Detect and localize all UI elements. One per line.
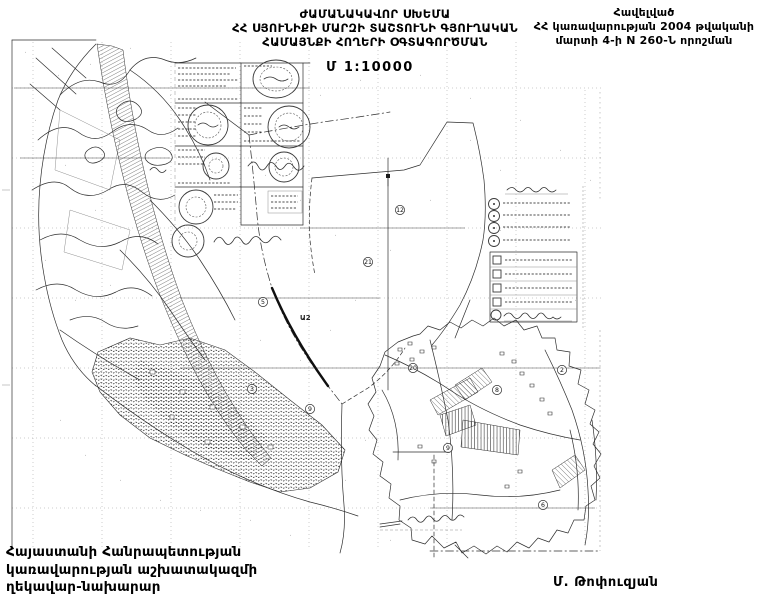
svg-text:9: 9 [446, 445, 450, 452]
legend-circle-icon [491, 310, 501, 320]
parcel-marker: 2 [557, 365, 566, 374]
title-line-2: ՀՀ ՍՅՈՒՆԻՔԻ ՄԱՐԶԻ ՏԱՇՏՈՒՆԻ ԳՅՈՒՂԱԿԱՆ [200, 21, 550, 35]
handwriting [504, 313, 561, 319]
legend-circle-icon [489, 199, 500, 247]
parcel-marker: 6 [538, 500, 547, 509]
map-legend [489, 186, 584, 330]
svg-text:8: 8 [495, 387, 499, 394]
appendix-line-3: մարտի 4-ի N 260-Ն որոշման [522, 34, 766, 48]
parcel-marker: 20 [408, 363, 417, 372]
svg-text:9: 9 [308, 406, 312, 413]
round-seal-icon [203, 153, 229, 179]
signatory-title: Հայաստանի Հանրապետության կառավարության ա… [6, 544, 257, 597]
handwriting [214, 236, 281, 244]
svg-text:2: 2 [560, 367, 564, 374]
svg-text:3: 3 [250, 386, 254, 393]
approval-stamps-table [150, 60, 310, 257]
parcel-marker: 8 [492, 385, 501, 394]
round-seal-icon [268, 106, 310, 148]
round-seal-icon [179, 190, 213, 224]
map-canvas: 5 21 12 3 9 20 9 8 2 [0, 0, 768, 606]
svg-text:20: 20 [409, 365, 417, 372]
settlement-south [368, 300, 601, 558]
handwriting [150, 168, 166, 173]
map-title: ԺԱՄԱՆԱԿԱՎՈՐ ՍԽԵՄԱ ՀՀ ՍՅՈՒՆԻՔԻ ՄԱՐԶԻ ՏԱՇՏ… [200, 7, 550, 49]
title-line-3: ՀԱՄԱՅՆՔԻ ՀՈՂԵՐԻ ՕԳՏԱԳՈՐԾՄԱՆ [200, 35, 550, 49]
settlement-west [92, 338, 345, 492]
appendix-line-1: Հավելված [522, 6, 766, 20]
parcel-marker: 21 [363, 257, 372, 266]
title-line-1: ԺԱՄԱՆԱԿԱՎՈՐ ՍԽԵՄԱ [200, 7, 550, 21]
signatory-line-2: կառավարության աշխատակազմի [6, 562, 257, 580]
scanned-map-sheet: 5 21 12 3 9 20 9 8 2 [0, 0, 768, 606]
round-seal-icon [172, 225, 204, 257]
map-scale: Մ 1:10000 [200, 60, 540, 75]
svg-text:12: 12 [396, 207, 404, 214]
handwritten-note [380, 515, 464, 530]
area-label: Ա2 [300, 314, 311, 322]
round-seal-icon [188, 105, 228, 145]
parcel-marker: 9 [443, 443, 452, 452]
signature-name: Մ. Թոփուզյան [553, 575, 658, 590]
appendix-line-2: ՀՀ կառավարության 2004 թվականի [522, 20, 766, 34]
parcel-marker: 5 [258, 297, 267, 306]
svg-text:6: 6 [541, 502, 545, 509]
appendix-note: Հավելված ՀՀ կառավարության 2004 թվականի մ… [522, 6, 766, 48]
parcel-marker: 9 [305, 404, 314, 413]
signatory-line-3: ղեկավար-նախարար [6, 579, 257, 597]
svg-text:5: 5 [261, 299, 265, 306]
parcel-marker: 3 [247, 384, 256, 393]
signatory-line-1: Հայաստանի Հանրապետության [6, 544, 257, 562]
parcel-marker: 12 [395, 205, 404, 214]
svg-text:21: 21 [364, 259, 372, 266]
